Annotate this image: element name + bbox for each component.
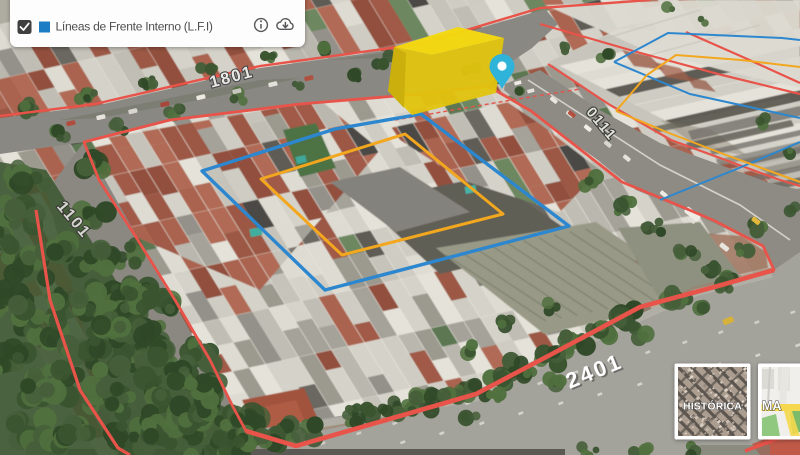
svg-text:Líneas de Frente Interno (L.F.: Líneas de Frente Interno (L.F.I) [56,20,213,34]
svg-text:HISTÓRICA: HISTÓRICA [683,400,742,413]
svg-text:MA: MA [762,399,781,413]
